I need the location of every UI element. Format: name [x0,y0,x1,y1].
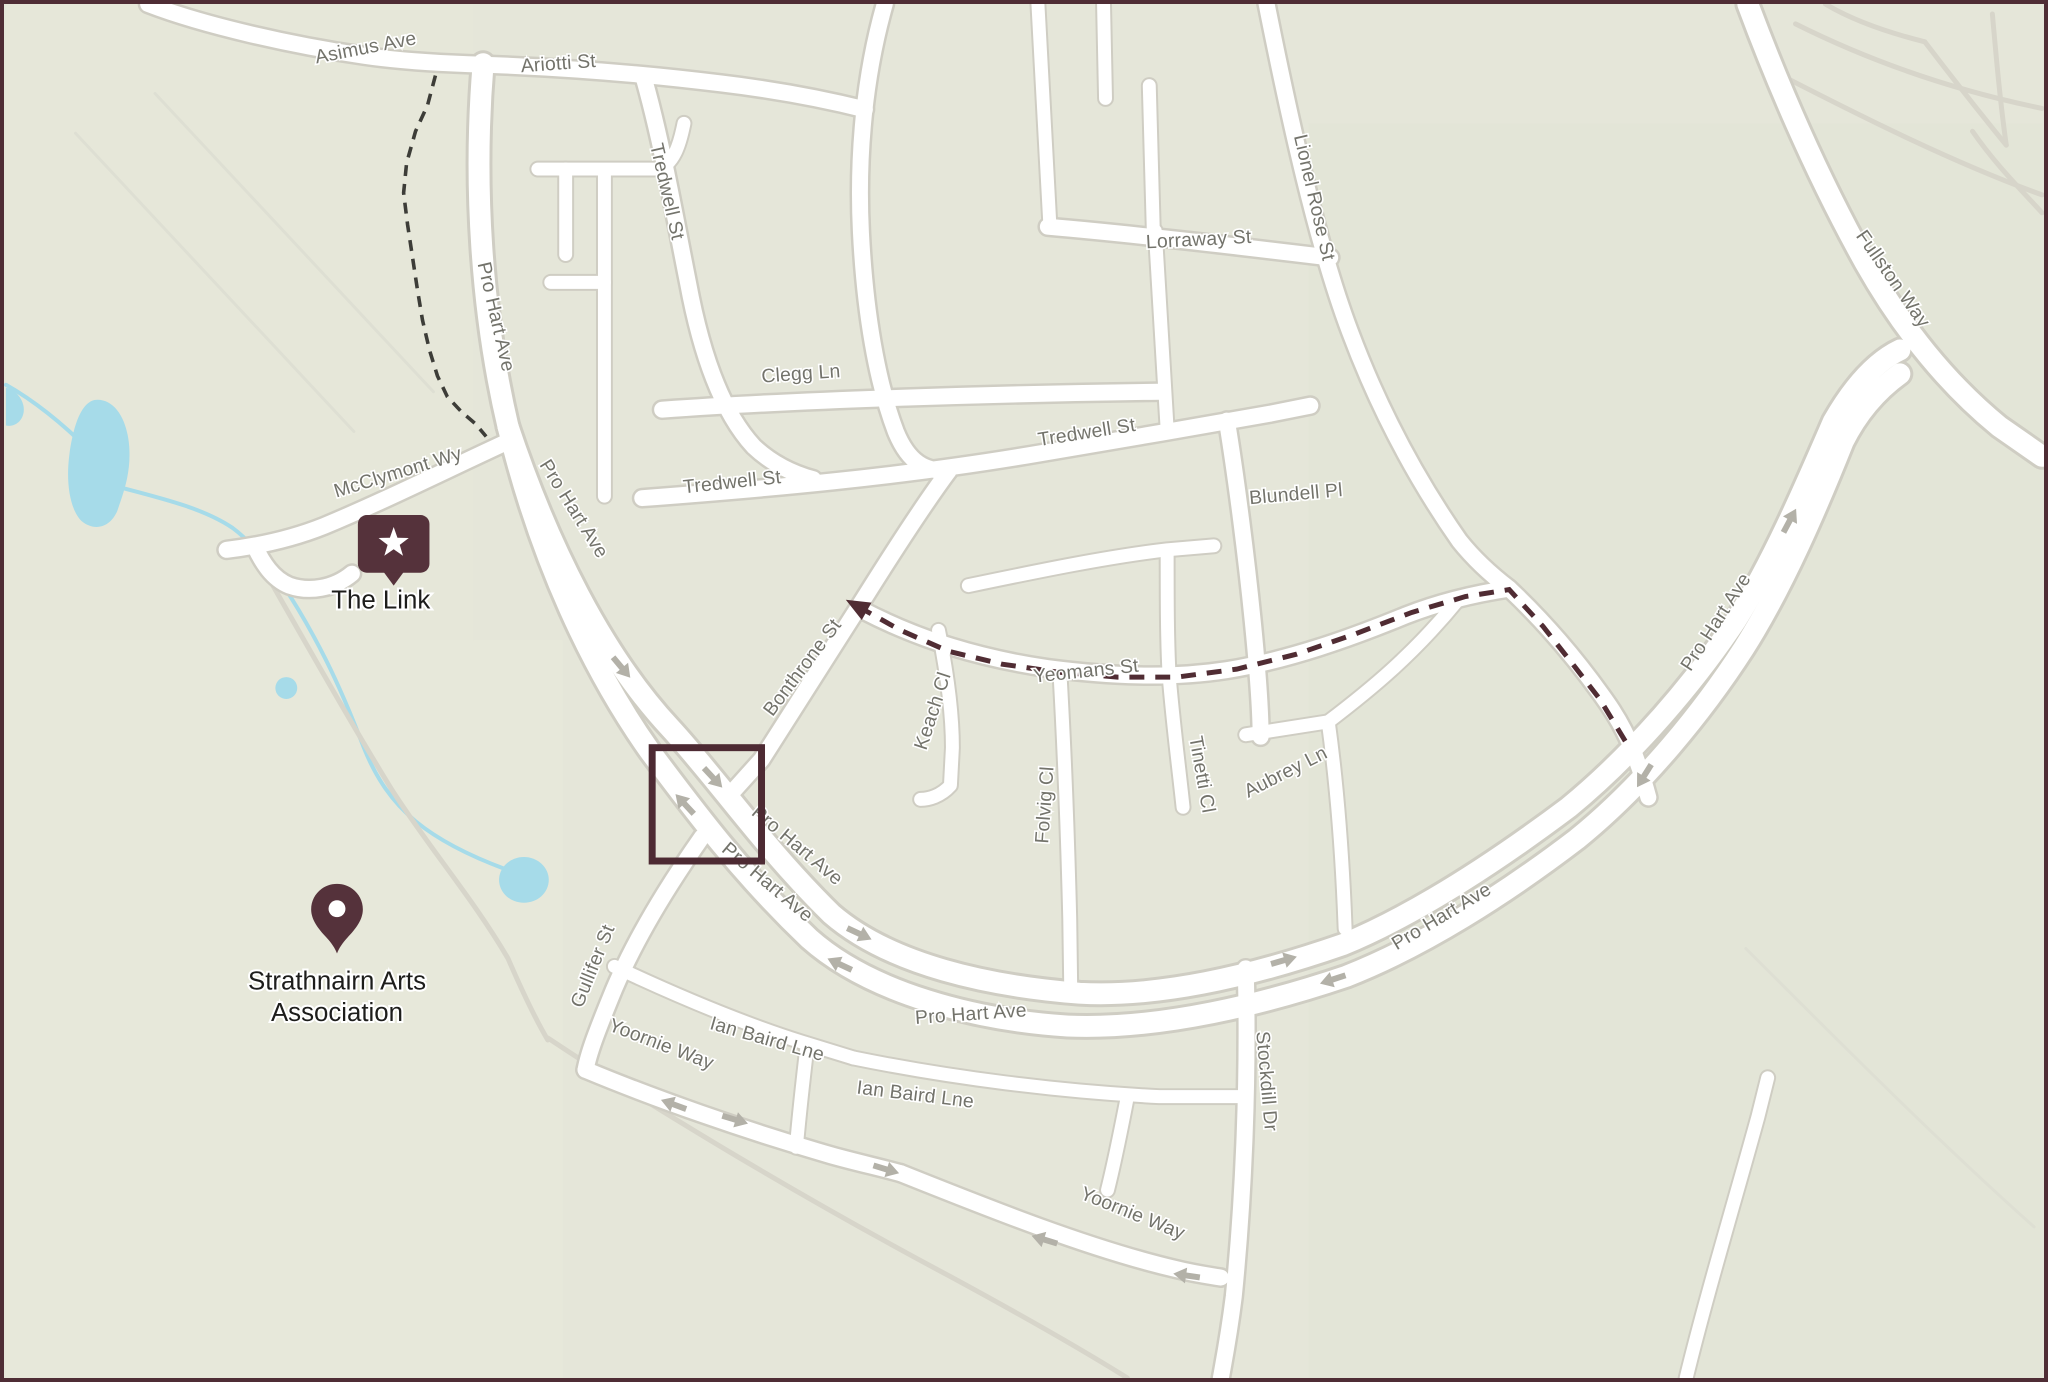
poi-label-strathnairn-arts-association: Strathnairn Arts [248,967,426,995]
poi-label-the-link: The Link [331,586,430,614]
road-blundell-stub [968,546,1214,586]
street-label-clegg-ln: Clegg Ln [761,360,841,387]
pond-small [275,677,297,699]
road-lorraway-v3 [1149,86,1153,229]
poi-label-strathnairn-arts-association: Association [271,999,403,1027]
map-canvas[interactable]: Asimus AveAriotti StTredwell StClegg LnT… [0,0,2048,1382]
street-label-ian-baird-lne: Ian Baird Lne [707,1012,826,1066]
street-label-yoornie-way: Yoornie Way [606,1014,717,1074]
street-label-folvig-cl: Folvig Cl [1031,766,1058,845]
road-lorraway-v2 [1104,4,1106,98]
pond-round [499,857,549,903]
